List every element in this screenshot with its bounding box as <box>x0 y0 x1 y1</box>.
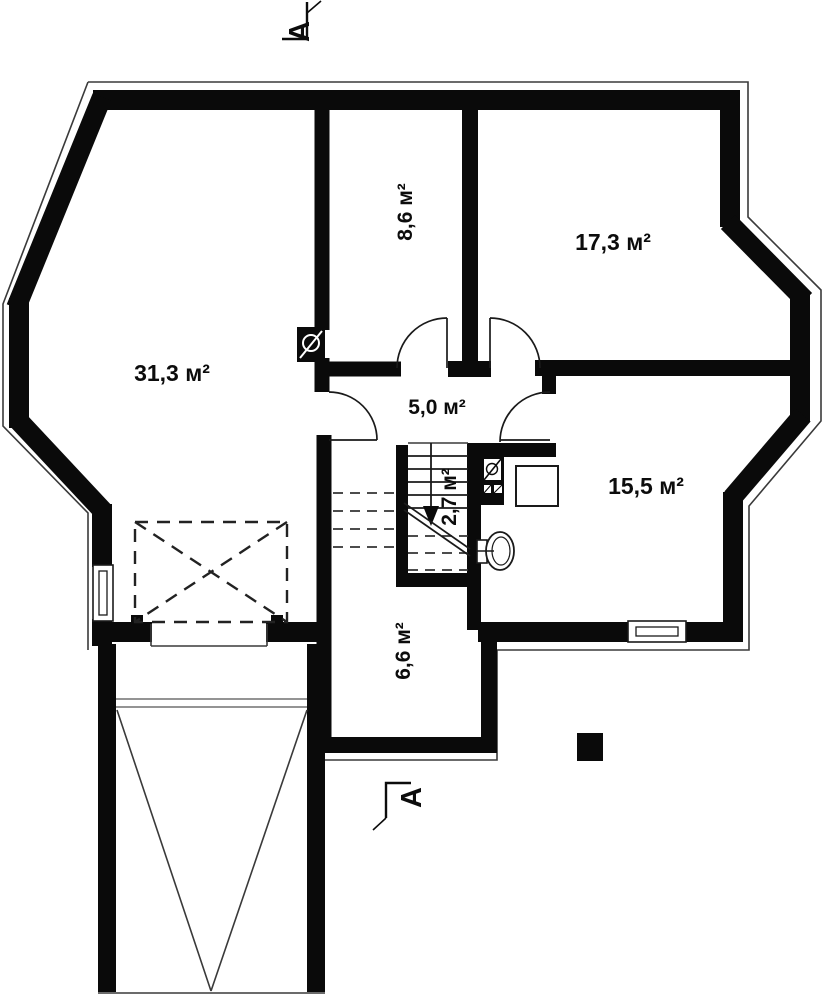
room-label-top-mid: 8,6 м² <box>394 183 417 241</box>
vent-shaft-icon <box>297 327 325 362</box>
void-opening-box <box>135 522 287 622</box>
section-letter-bottom: А <box>396 787 428 808</box>
fixtures <box>297 327 603 761</box>
wall-chamfer-top-right <box>728 222 805 300</box>
room-label-stairs: 2,7 м² <box>438 468 461 526</box>
wall-chamfer-top-left <box>16 97 102 308</box>
stair-direction-arrow <box>423 506 439 526</box>
door-room-right <box>500 392 550 442</box>
garage-roof-ridge-right <box>211 710 307 991</box>
porch-pier-right <box>271 615 283 625</box>
floor-plan: А А 31,3 м² 8,6 м² 17,3 м² 5,0 м² 2,7 м²… <box>0 0 833 1000</box>
door-room-top-mid <box>397 318 447 368</box>
room-label-top-right: 17,3 м² <box>575 229 651 255</box>
wall-chamfer-bottom-left <box>17 419 104 512</box>
doors <box>329 318 550 442</box>
wall-chamfer-bottom-right <box>732 415 803 498</box>
floor-plan-canvas: А А 31,3 м² 8,6 м² 17,3 м² 5,0 м² 2,7 м²… <box>0 0 833 1000</box>
stair-flight-dashed-left <box>333 493 396 547</box>
room-label-bottom: 6,6 м² <box>392 622 415 680</box>
room-label-hallway: 5,0 м² <box>408 396 466 419</box>
section-marker-bottom: А <box>373 783 428 830</box>
porch-opening <box>131 615 283 646</box>
chimney-pillar <box>577 733 603 761</box>
garage-roof-ridge-left <box>117 710 211 991</box>
window-bottom <box>628 621 686 642</box>
door-room-top-right <box>490 318 540 368</box>
window-left <box>93 565 113 621</box>
room-label-right: 15,5 м² <box>608 473 684 499</box>
garage <box>98 644 325 993</box>
door-living <box>329 392 377 440</box>
room-label-living: 31,3 м² <box>134 360 210 386</box>
room-labels: 31,3 м² 8,6 м² 17,3 м² 5,0 м² 2,7 м² 15,… <box>134 183 684 680</box>
section-marker-top: А <box>282 1 321 42</box>
toilet-icon <box>477 532 514 570</box>
vent-duct-icon <box>481 455 504 505</box>
shower-tray <box>516 466 558 506</box>
section-letter-top: А <box>284 21 316 42</box>
contour-right-loop <box>88 82 821 760</box>
